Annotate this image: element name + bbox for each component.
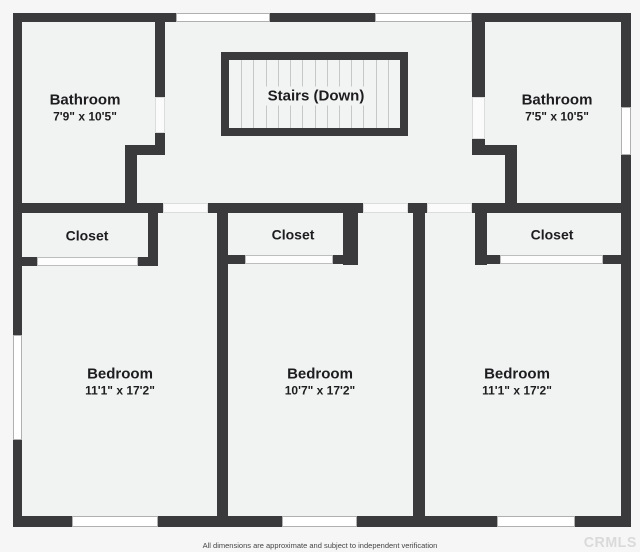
wall-outer-right-1: [621, 13, 631, 107]
door-opening-bathroom-right: [472, 97, 485, 139]
room-label-bedroom-right: Bedroom11'1" x 17'2": [482, 366, 552, 399]
door-opening-bedroom-right: [427, 203, 472, 213]
wall-outer-bottom-3: [357, 516, 497, 527]
wall-outer-left-1: [13, 13, 22, 335]
closet-middle-door: [245, 255, 333, 264]
window-right: [621, 107, 631, 155]
wall-bathroom-right-notch-v: [505, 145, 517, 203]
room-name: Closet: [66, 228, 109, 245]
wall-closet-middle-bottom-1: [217, 255, 245, 264]
disclaimer-text: All dimensions are approximate and subje…: [203, 541, 438, 550]
wall-closet-right-bottom-1: [475, 255, 500, 264]
wall-bathroom-right-wall-upper: [472, 13, 485, 97]
wall-closet-left-bottom-2: [138, 257, 158, 266]
wall-outer-top-2: [270, 13, 375, 22]
wall-hall-wall-2: [208, 203, 363, 213]
stair-tread-line: [241, 60, 242, 128]
room-dimensions: 7'9" x 10'5": [50, 110, 121, 125]
room-name: Bathroom: [522, 92, 593, 109]
wall-outer-top-1: [13, 13, 176, 22]
wall-closet-middle-bottom-2: [333, 255, 358, 264]
window-bottom-right: [497, 516, 575, 527]
door-opening-bedroom-left: [163, 203, 208, 213]
room-name: Bedroom: [285, 366, 355, 383]
crmls-watermark: CRMLS: [584, 534, 637, 551]
stair-tread-line: [388, 60, 389, 128]
wall-outer-top-3: [472, 13, 631, 22]
wall-outer-left-2: [13, 440, 22, 527]
closet-right-door: [500, 255, 603, 264]
room-label-bathroom-left: Bathroom7'9" x 10'5": [50, 92, 121, 125]
wall-bathroom-left-notch-v: [125, 145, 137, 203]
room-name: Bedroom: [85, 366, 155, 383]
wall-bathroom-left-wall-upper: [155, 13, 165, 97]
stair-tread-line: [253, 60, 254, 128]
closet-left-door: [37, 257, 138, 266]
room-name: Bathroom: [50, 92, 121, 109]
stairs-label: Stairs (Down): [263, 87, 370, 106]
stair-tread-line: [376, 60, 377, 128]
wall-hall-wall-1: [13, 203, 163, 213]
room-dimensions: 11'1" x 17'2": [85, 384, 155, 399]
room-label-closet-right: Closet: [531, 227, 574, 244]
wall-hall-wall-4: [472, 203, 631, 213]
room-label-bedroom-middle: Bedroom10'7" x 17'2": [285, 366, 355, 399]
room-name: Closet: [531, 227, 574, 244]
floor-plan-image: Stairs (Down)Bathroom7'9" x 10'5"Bathroo…: [0, 0, 640, 552]
window-top-right: [375, 13, 472, 22]
wall-closet-left-bottom-1: [13, 257, 37, 266]
room-name: Closet: [272, 227, 315, 244]
room-label-bedroom-left: Bedroom11'1" x 17'2": [85, 366, 155, 399]
window-bottom-left: [72, 516, 158, 527]
window-bottom-middle: [282, 516, 357, 527]
room-dimensions: 11'1" x 17'2": [482, 384, 552, 399]
wall-outer-bottom-4: [575, 516, 631, 527]
room-label-closet-middle: Closet: [272, 227, 315, 244]
room-label-closet-left: Closet: [66, 228, 109, 245]
wall-bedroom-divider-left: [217, 203, 228, 527]
wall-closet-right-bottom-2: [603, 255, 631, 264]
room-dimensions: 10'7" x 17'2": [285, 384, 355, 399]
door-opening-bathroom-left: [155, 97, 165, 133]
room-dimensions: 7'5" x 10'5": [522, 110, 593, 125]
wall-closet-left-sidewall: [148, 203, 158, 265]
window-top-left: [176, 13, 270, 22]
door-opening-bedroom-middle: [363, 203, 408, 213]
room-name: Bedroom: [482, 366, 552, 383]
room-label-bathroom-right: Bathroom7'5" x 10'5": [522, 92, 593, 125]
wall-bedroom-divider-right: [413, 203, 425, 527]
window-left: [13, 335, 22, 440]
wall-outer-bottom-1: [13, 516, 72, 527]
